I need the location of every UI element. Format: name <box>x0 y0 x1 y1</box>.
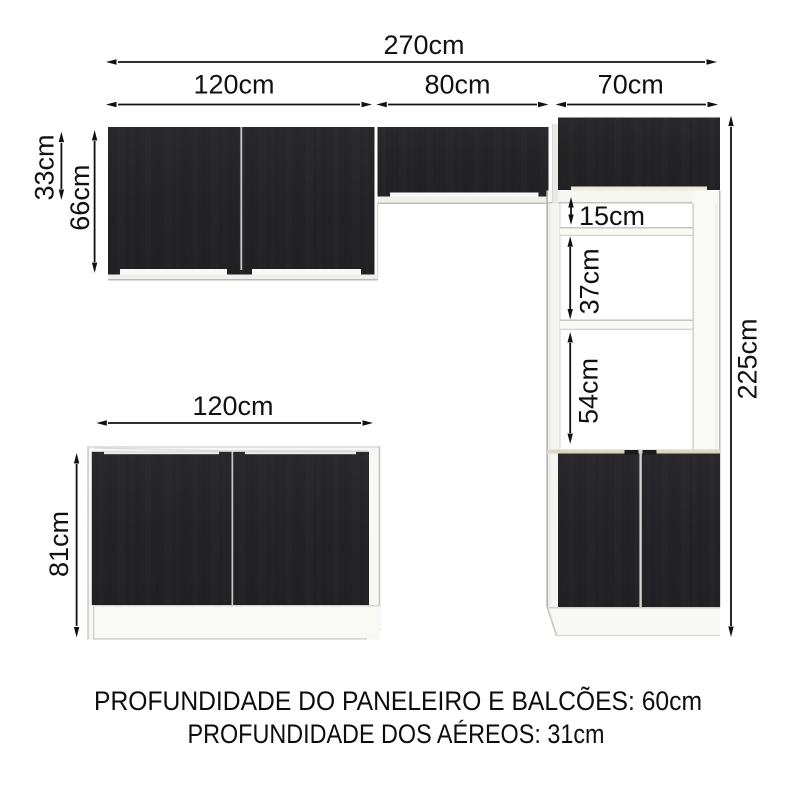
svg-text:70cm: 70cm <box>598 70 664 100</box>
svg-text:PROFUNDIDADE DO PANELEIRO E BA: PROFUNDIDADE DO PANELEIRO E BALCÕES: 60c… <box>94 686 702 716</box>
svg-text:54cm: 54cm <box>574 358 604 424</box>
svg-text:37cm: 37cm <box>574 248 604 314</box>
svg-text:33cm: 33cm <box>30 134 60 200</box>
svg-text:15cm: 15cm <box>579 201 645 231</box>
svg-text:225cm: 225cm <box>733 318 763 399</box>
svg-text:81cm: 81cm <box>44 511 74 577</box>
svg-text:PROFUNDIDADE DOS AÉREOS: 31cm: PROFUNDIDADE DOS AÉREOS: 31cm <box>188 719 605 749</box>
svg-text:120cm: 120cm <box>193 70 274 100</box>
svg-text:120cm: 120cm <box>192 391 273 421</box>
svg-text:270cm: 270cm <box>383 30 464 60</box>
svg-text:80cm: 80cm <box>424 70 490 100</box>
svg-text:66cm: 66cm <box>65 165 95 231</box>
